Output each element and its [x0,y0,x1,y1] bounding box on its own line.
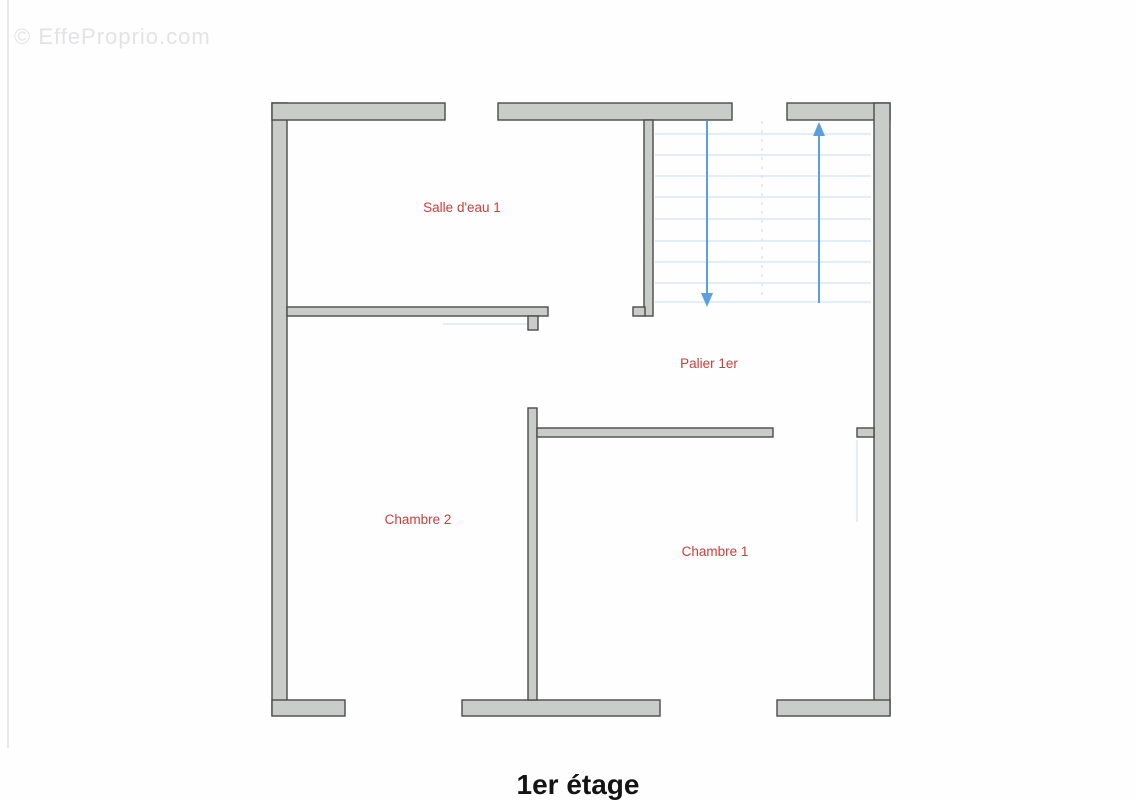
outer-wall-bottom-segment-2 [462,700,660,716]
door-jamb-chambre1 [857,428,874,437]
room-label-palier-1er: Palier 1er [680,356,738,371]
floor-plan-drawing: © EffeProprio.com Sall [0,0,1135,800]
outer-wall-bottom-segment-3 [777,700,890,716]
outer-wall-top-segment-2 [498,103,732,120]
floor-title: 1er étage [517,769,640,800]
wall-salle-deau-bottom [287,307,548,316]
room-label-chambre-2: Chambre 2 [385,512,452,527]
outer-wall-top-segment-1 [272,103,445,120]
stair-down-arrow-icon [701,121,713,307]
floor-plan-page: © EffeProprio.com Sall [0,0,1135,800]
door-jamb-salle-deau [528,316,538,330]
outer-wall-right [874,103,890,715]
watermark-text: © EffeProprio.com [14,24,211,49]
wall-stair-divider-foot [633,307,645,316]
wall-chambre-divider [528,408,537,700]
wall-palier-chambre1 [537,428,773,437]
outer-wall-left [272,103,287,715]
wall-stair-divider [644,120,653,316]
room-label-chambre-1: Chambre 1 [682,544,749,559]
staircase [655,121,871,307]
outer-wall-bottom-segment-1 [272,700,345,716]
room-label-salle-deau-1: Salle d'eau 1 [423,200,501,215]
stair-up-arrow-icon [813,122,825,303]
